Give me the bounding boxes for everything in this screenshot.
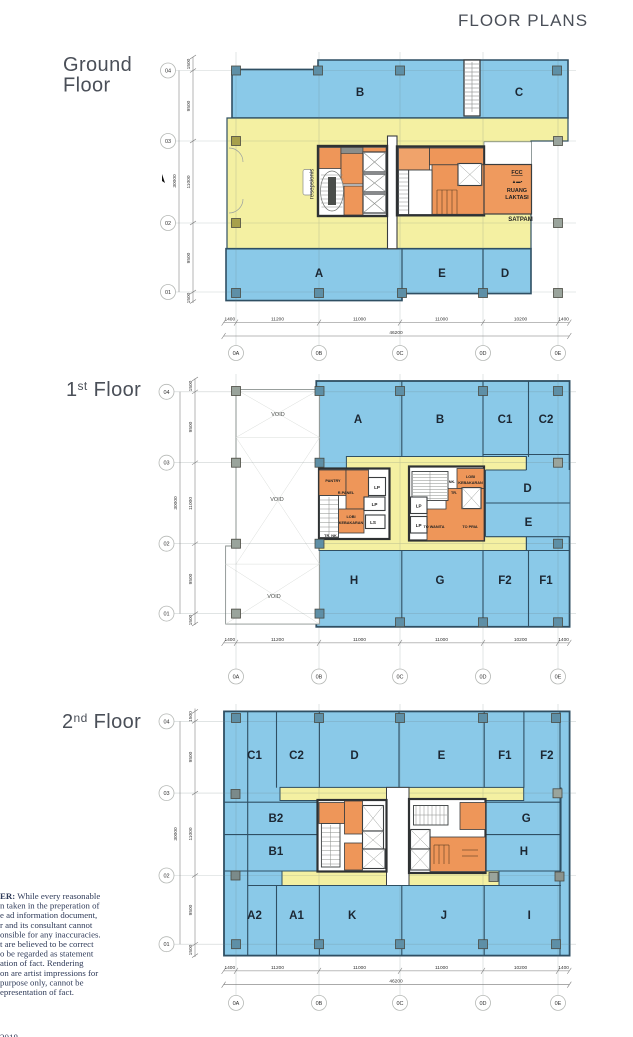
svg-text:t are believed to be correct: t are believed to be correct (0, 939, 94, 949)
svg-text:1400: 1400 (558, 965, 569, 971)
svg-text:F2: F2 (498, 575, 511, 587)
svg-text:11000: 11000 (435, 637, 448, 643)
svg-text:1500: 1500 (188, 944, 194, 955)
svg-text:01: 01 (163, 612, 169, 618)
svg-text:G: G (436, 575, 445, 587)
svg-text:2nd Floor: 2nd Floor (62, 711, 141, 733)
svg-text:10200: 10200 (514, 317, 528, 323)
svg-text:11000: 11000 (186, 175, 192, 188)
svg-text:VOID: VOID (270, 497, 283, 503)
svg-text:B2: B2 (269, 813, 284, 825)
svg-text:02: 02 (165, 221, 171, 227)
svg-text:B: B (436, 414, 444, 426)
svg-text:0A: 0A (233, 1001, 240, 1007)
svg-text:TO PRIA: TO PRIA (462, 525, 478, 529)
svg-text:1500: 1500 (188, 711, 194, 722)
svg-text:NK.: NK. (449, 480, 456, 484)
svg-text:1400: 1400 (558, 317, 569, 323)
svg-text:0D: 0D (479, 351, 486, 357)
svg-text:F2: F2 (540, 750, 553, 762)
svg-text:VOID: VOID (271, 412, 284, 418)
svg-text:Floor: Floor (63, 75, 111, 97)
svg-text:2018: 2018 (0, 1033, 19, 1037)
svg-text:1500: 1500 (188, 380, 194, 391)
svg-text:A: A (315, 268, 323, 280)
svg-text:E: E (525, 517, 533, 529)
svg-text:A2: A2 (247, 910, 262, 922)
svg-text:Ground: Ground (63, 54, 132, 76)
svg-text:RUANG: RUANG (507, 188, 527, 194)
svg-text:r and its consultant cannot: r and its consultant cannot (0, 920, 93, 930)
svg-text:VOID: VOID (267, 594, 280, 600)
svg-text:1400: 1400 (224, 637, 235, 643)
svg-text:0E: 0E (555, 351, 562, 357)
svg-text:0C: 0C (396, 351, 403, 357)
svg-text:LP: LP (416, 504, 422, 509)
svg-text:C: C (515, 87, 523, 99)
svg-text:n taken in the preperation of: n taken in the preperation of (0, 901, 99, 911)
svg-text:02: 02 (163, 874, 169, 880)
svg-text:1st Floor: 1st Floor (66, 379, 141, 401)
svg-text:11000: 11000 (353, 637, 366, 643)
svg-text:04: 04 (165, 69, 171, 75)
svg-text:9500: 9500 (186, 252, 192, 263)
svg-text:1500: 1500 (186, 292, 192, 303)
svg-text:K: K (348, 910, 357, 922)
svg-text:onsible for any inaccuracies.: onsible for any inaccuracies. (0, 929, 101, 939)
svg-text:D: D (523, 483, 531, 495)
svg-text:1500: 1500 (186, 58, 192, 69)
svg-text:G: G (522, 813, 531, 825)
svg-text:01: 01 (163, 942, 169, 948)
svg-text:R.PANEL: R.PANEL (338, 491, 355, 495)
svg-text:E: E (438, 268, 446, 280)
svg-text:LS: LS (370, 520, 376, 525)
svg-text:D: D (501, 268, 509, 280)
svg-text:46200: 46200 (389, 979, 403, 985)
svg-text:B: B (356, 87, 364, 99)
svg-text:TO WANITA: TO WANITA (424, 525, 445, 529)
svg-text:C1: C1 (498, 414, 513, 426)
svg-text:30000: 30000 (172, 174, 178, 188)
svg-text:9500: 9500 (188, 573, 194, 584)
svg-text:03: 03 (163, 461, 169, 467)
svg-text:11000: 11000 (353, 965, 366, 971)
svg-text:30000: 30000 (173, 827, 179, 841)
svg-text:LOBI: LOBI (346, 515, 355, 519)
svg-text:C2: C2 (289, 750, 304, 762)
svg-text:J: J (441, 910, 447, 922)
svg-text:30000: 30000 (173, 496, 179, 510)
svg-text:0B: 0B (316, 1001, 323, 1007)
svg-text:0C: 0C (396, 1001, 403, 1007)
svg-text:01: 01 (165, 290, 171, 296)
svg-text:0C: 0C (396, 675, 403, 681)
svg-text:11000: 11000 (188, 827, 194, 840)
svg-text:LP: LP (416, 523, 422, 528)
svg-text:TR.: TR. (451, 491, 457, 495)
svg-text:0A: 0A (233, 675, 240, 681)
svg-text:03: 03 (163, 791, 169, 797)
svg-text:ation of fact. Rendering: ation of fact. Rendering (0, 958, 84, 968)
svg-text:04: 04 (163, 719, 169, 725)
svg-text:o be regarded as statement: o be regarded as statement (0, 949, 94, 959)
svg-text:on are artist impressions for: on are artist impressions for (0, 968, 98, 978)
svg-text:9500: 9500 (188, 751, 194, 762)
svg-text:FLOOR PLANS: FLOOR PLANS (458, 11, 588, 30)
svg-text:resepsionis: resepsionis (310, 169, 316, 199)
svg-text:epresentation of fact.: epresentation of fact. (0, 987, 74, 997)
svg-text:46200: 46200 (389, 330, 403, 336)
svg-text:FCC: FCC (511, 170, 522, 176)
svg-text:I: I (528, 910, 531, 922)
svg-text:F1: F1 (498, 750, 512, 762)
svg-text:03: 03 (165, 139, 171, 145)
svg-text:11000: 11000 (435, 317, 448, 323)
svg-text:10200: 10200 (514, 965, 528, 971)
svg-text:02: 02 (163, 542, 169, 548)
svg-text:F1: F1 (539, 575, 553, 587)
svg-text:11200: 11200 (271, 637, 284, 643)
svg-text:0E: 0E (555, 1001, 562, 1007)
svg-text:1500: 1500 (188, 614, 194, 625)
svg-text:LP: LP (372, 502, 378, 507)
svg-text:A: A (354, 414, 362, 426)
svg-text:TR. NK.: TR. NK. (324, 534, 338, 538)
svg-text:purpose only, cannot be: purpose only, cannot be (0, 977, 84, 987)
svg-text:C1: C1 (247, 750, 262, 762)
svg-text:0A: 0A (233, 351, 240, 357)
svg-text:9500: 9500 (188, 904, 194, 915)
svg-text:1400: 1400 (224, 965, 235, 971)
svg-text:KEBAKARAN: KEBAKARAN (458, 481, 483, 485)
svg-text:9500: 9500 (188, 421, 194, 432)
svg-text:0B: 0B (316, 675, 323, 681)
svg-text:11000: 11000 (435, 965, 448, 971)
svg-text:E: E (438, 750, 446, 762)
svg-text:ER: While every reasonable: ER: While every reasonable (0, 891, 100, 901)
svg-text:KEBAKARAN: KEBAKARAN (339, 521, 364, 525)
svg-text:D: D (350, 750, 358, 762)
svg-text:11200: 11200 (271, 965, 284, 971)
svg-text:11200: 11200 (271, 317, 284, 323)
svg-text:0D: 0D (479, 1001, 486, 1007)
svg-text:11000: 11000 (188, 497, 194, 510)
svg-text:1400: 1400 (558, 637, 569, 643)
svg-text:0D: 0D (479, 675, 486, 681)
svg-text:11000: 11000 (353, 317, 366, 323)
svg-text:B1: B1 (269, 846, 284, 858)
svg-text:C2: C2 (539, 414, 554, 426)
svg-text:▲▬▪: ▲▬▪ (512, 179, 523, 184)
svg-text:9500: 9500 (186, 100, 192, 111)
svg-text:LAKTASI: LAKTASI (505, 195, 529, 201)
svg-text:A1: A1 (289, 910, 304, 922)
svg-text:LP: LP (374, 485, 380, 490)
svg-text:1400: 1400 (224, 317, 235, 323)
svg-text:10200: 10200 (514, 637, 528, 643)
svg-text:PANTRY: PANTRY (325, 479, 341, 483)
svg-text:e ad information document,: e ad information document, (0, 910, 97, 920)
svg-text:H: H (350, 575, 358, 587)
svg-text:LOBI: LOBI (466, 475, 475, 479)
svg-text:0B: 0B (316, 351, 323, 357)
svg-text:04: 04 (163, 390, 169, 396)
svg-text:H: H (520, 846, 528, 858)
svg-text:SATPAM: SATPAM (508, 217, 532, 223)
svg-text:0E: 0E (555, 675, 562, 681)
